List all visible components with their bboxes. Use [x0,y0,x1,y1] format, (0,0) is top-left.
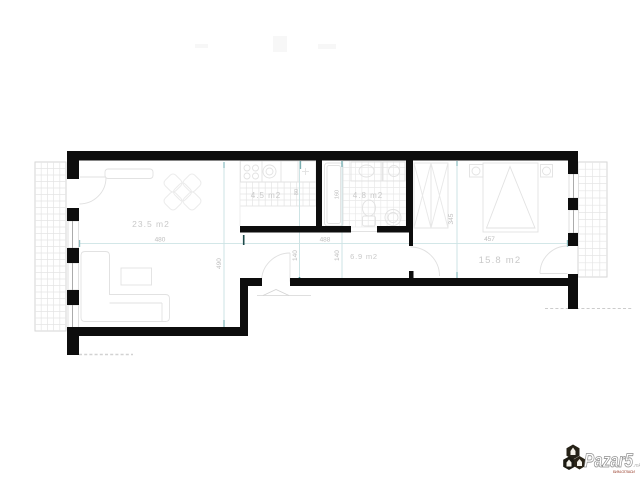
svg-text:4.8 m2: 4.8 m2 [353,191,383,200]
svg-text:БИМ-ОГЛАСИ: БИМ-ОГЛАСИ [613,470,635,474]
svg-text:6.9 m2: 6.9 m2 [350,252,378,261]
svg-text:488: 488 [320,237,331,244]
svg-text:480: 480 [155,237,166,244]
svg-text:345: 345 [448,213,455,224]
svg-text:15.8 m2: 15.8 m2 [479,255,522,266]
svg-text:4.5 m2: 4.5 m2 [251,191,281,200]
svg-text:140: 140 [292,250,299,261]
svg-text:23.5 m2: 23.5 m2 [132,219,170,229]
svg-text:457: 457 [484,236,495,243]
svg-text:.mk: .mk [633,463,640,469]
svg-text:Pazar5: Pazar5 [584,451,633,472]
svg-text:140: 140 [334,250,341,261]
svg-text:490: 490 [216,258,223,269]
svg-text:160: 160 [335,190,341,199]
svg-text:80: 80 [294,189,300,195]
